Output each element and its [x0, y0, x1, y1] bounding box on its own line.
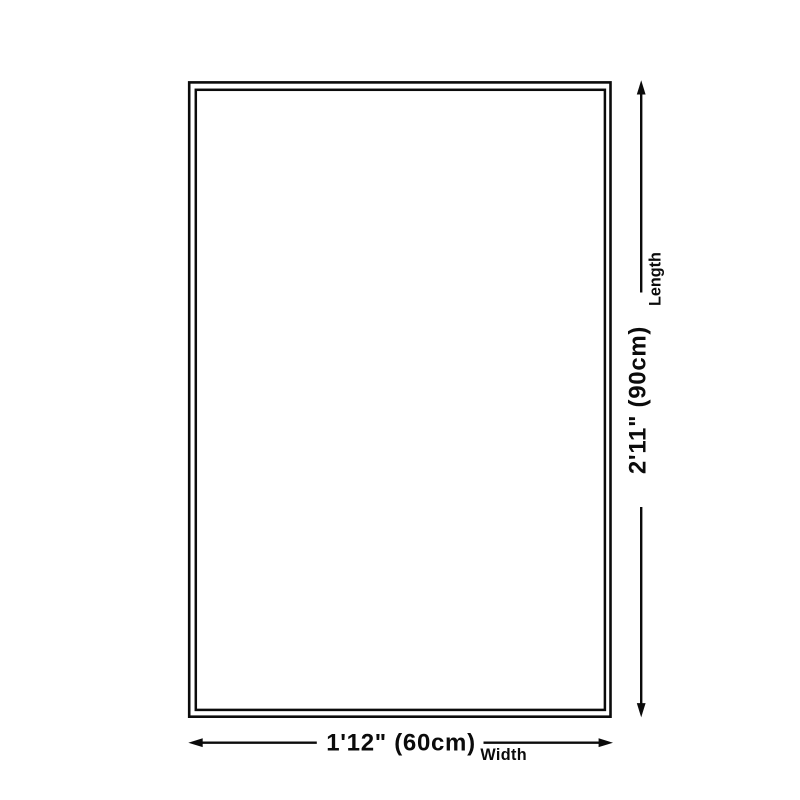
- svg-text:Width: Width: [480, 746, 527, 764]
- svg-text:1'12" (60cm): 1'12" (60cm): [326, 729, 476, 756]
- svg-text:2'11" (90cm): 2'11" (90cm): [625, 326, 652, 474]
- svg-text:Length: Length: [646, 252, 664, 306]
